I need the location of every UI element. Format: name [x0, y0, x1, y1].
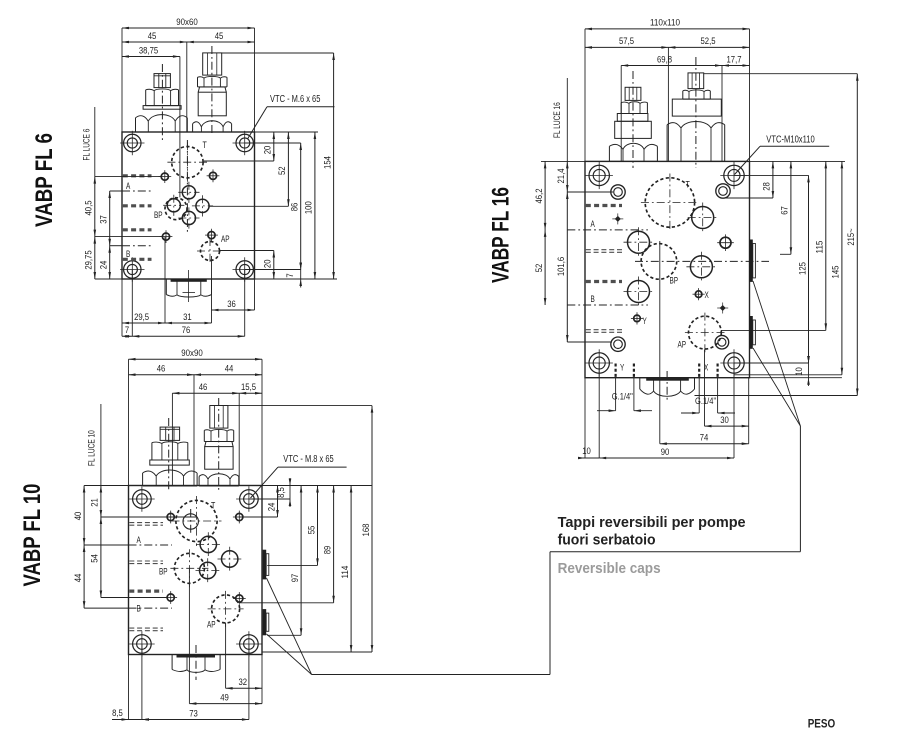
svg-text:G.1/4": G.1/4": [695, 396, 716, 406]
svg-text:Reversible caps: Reversible caps: [558, 561, 661, 577]
svg-text:BP: BP: [159, 567, 168, 578]
svg-text:38,75: 38,75: [139, 45, 158, 56]
svg-text:45: 45: [148, 31, 157, 42]
svg-text:40,5: 40,5: [84, 201, 95, 216]
svg-text:30: 30: [720, 415, 729, 426]
svg-text:T: T: [203, 140, 207, 151]
svg-text:44: 44: [73, 574, 84, 583]
svg-text:7: 7: [125, 325, 129, 336]
svg-text:20: 20: [263, 260, 274, 269]
svg-text:29,75: 29,75: [84, 250, 95, 269]
svg-text:46: 46: [157, 364, 166, 375]
svg-text:37: 37: [99, 215, 110, 224]
svg-text:69,8: 69,8: [657, 54, 672, 65]
svg-text:A: A: [591, 219, 596, 230]
svg-text:G.1/4": G.1/4": [612, 392, 633, 402]
svg-text:52: 52: [534, 264, 545, 273]
svg-text:145: 145: [831, 266, 842, 279]
svg-text:54: 54: [90, 554, 101, 563]
svg-text:90x60: 90x60: [176, 17, 198, 28]
svg-text:67: 67: [780, 206, 791, 215]
svg-text:Tappi reversibili per pompe: Tappi reversibili per pompe: [558, 515, 746, 531]
svg-text:44: 44: [225, 364, 234, 375]
svg-text:110x110: 110x110: [650, 18, 680, 29]
svg-text:24: 24: [266, 503, 277, 512]
svg-text:101,6: 101,6: [556, 257, 567, 276]
svg-text:73: 73: [189, 708, 198, 719]
svg-text:90: 90: [661, 447, 670, 458]
svg-text:X: X: [705, 290, 710, 301]
svg-text:125: 125: [797, 262, 808, 275]
svg-text:32: 32: [239, 677, 248, 688]
svg-text:FL LUCE 10: FL LUCE 10: [87, 430, 97, 466]
svg-text:10: 10: [582, 446, 591, 457]
svg-text:57,5: 57,5: [619, 36, 634, 47]
svg-text:52: 52: [277, 166, 288, 175]
svg-text:PESO: PESO: [808, 717, 836, 731]
svg-text:7: 7: [285, 273, 296, 277]
svg-text:46: 46: [199, 382, 208, 393]
svg-text:168: 168: [361, 524, 372, 537]
svg-text:40: 40: [73, 512, 84, 521]
svg-text:VABP FL 16: VABP FL 16: [488, 187, 515, 283]
svg-text:215~: 215~: [846, 228, 857, 246]
svg-text:B: B: [137, 604, 141, 615]
svg-text:36: 36: [227, 299, 236, 310]
svg-text:Y: Y: [643, 316, 648, 327]
svg-text:8,5: 8,5: [112, 708, 123, 719]
svg-text:28: 28: [762, 182, 773, 191]
svg-text:BP: BP: [670, 276, 679, 287]
svg-text:A: A: [137, 535, 142, 546]
svg-text:T: T: [211, 501, 215, 512]
svg-text:52,5: 52,5: [701, 36, 716, 47]
svg-text:VTC - M.6 x 65: VTC - M.6 x 65: [270, 94, 321, 105]
svg-text:21,4: 21,4: [556, 169, 567, 184]
svg-text:20: 20: [263, 146, 274, 155]
svg-text:fuori serbatoio: fuori serbatoio: [558, 533, 656, 549]
svg-text:AP: AP: [207, 620, 216, 631]
svg-text:10: 10: [794, 367, 805, 376]
svg-text:VTC-M10x110: VTC-M10x110: [766, 135, 815, 146]
svg-text:45: 45: [215, 31, 224, 42]
svg-text:86: 86: [290, 203, 301, 212]
svg-text:8,5: 8,5: [276, 487, 287, 498]
svg-text:17,7: 17,7: [727, 54, 742, 65]
svg-text:AP: AP: [678, 340, 687, 351]
svg-text:AP: AP: [221, 234, 230, 245]
svg-text:115: 115: [815, 241, 826, 254]
svg-text:B: B: [591, 294, 595, 305]
svg-text:FL LUCE 16: FL LUCE 16: [552, 102, 562, 138]
svg-text:T: T: [686, 180, 690, 191]
svg-text:76: 76: [182, 325, 191, 336]
svg-text:A: A: [126, 181, 131, 192]
svg-text:154: 154: [322, 156, 333, 169]
svg-text:21: 21: [90, 498, 101, 507]
svg-text:49: 49: [220, 692, 229, 703]
svg-text:15,5: 15,5: [241, 382, 256, 393]
svg-text:97: 97: [290, 574, 301, 583]
svg-text:31: 31: [183, 312, 192, 323]
svg-text:BP: BP: [154, 210, 163, 221]
svg-text:VABP FL 6: VABP FL 6: [31, 133, 58, 227]
svg-text:24: 24: [99, 261, 110, 270]
svg-text:55: 55: [306, 526, 317, 535]
svg-text:VABP FL 10: VABP FL 10: [19, 484, 46, 587]
svg-text:114: 114: [340, 566, 351, 579]
svg-text:Y: Y: [620, 363, 625, 374]
svg-text:74: 74: [700, 433, 709, 444]
svg-text:100: 100: [304, 201, 315, 214]
svg-text:90x90: 90x90: [181, 348, 203, 359]
svg-text:46,2: 46,2: [534, 189, 545, 204]
svg-text:FL LUCE 6: FL LUCE 6: [82, 129, 92, 161]
svg-text:29,5: 29,5: [134, 312, 149, 323]
svg-text:89: 89: [322, 546, 333, 555]
svg-text:VTC - M.8 x 65: VTC - M.8 x 65: [283, 454, 334, 465]
